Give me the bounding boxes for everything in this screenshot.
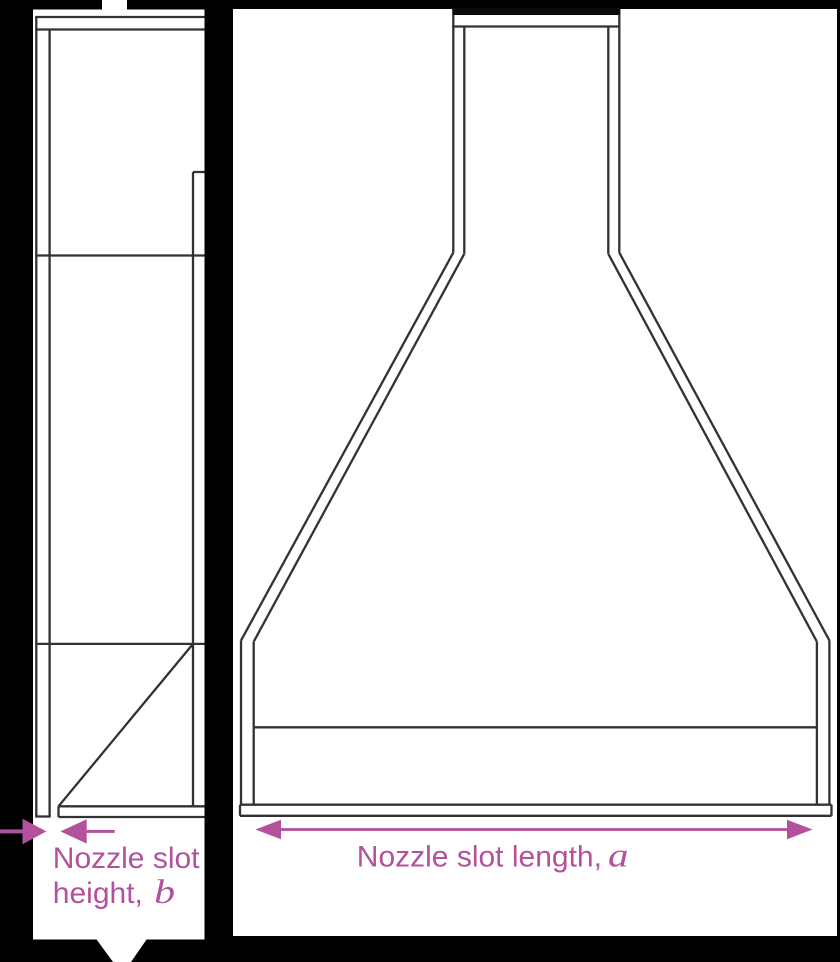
- svg-text:a: a: [608, 837, 629, 874]
- svg-text:Nozzle slot: Nozzle slot: [53, 842, 200, 875]
- svg-text:Nozzle slot length,: Nozzle slot length,: [357, 840, 602, 873]
- svg-text:height,: height,: [53, 877, 143, 910]
- svg-text:b: b: [154, 874, 175, 911]
